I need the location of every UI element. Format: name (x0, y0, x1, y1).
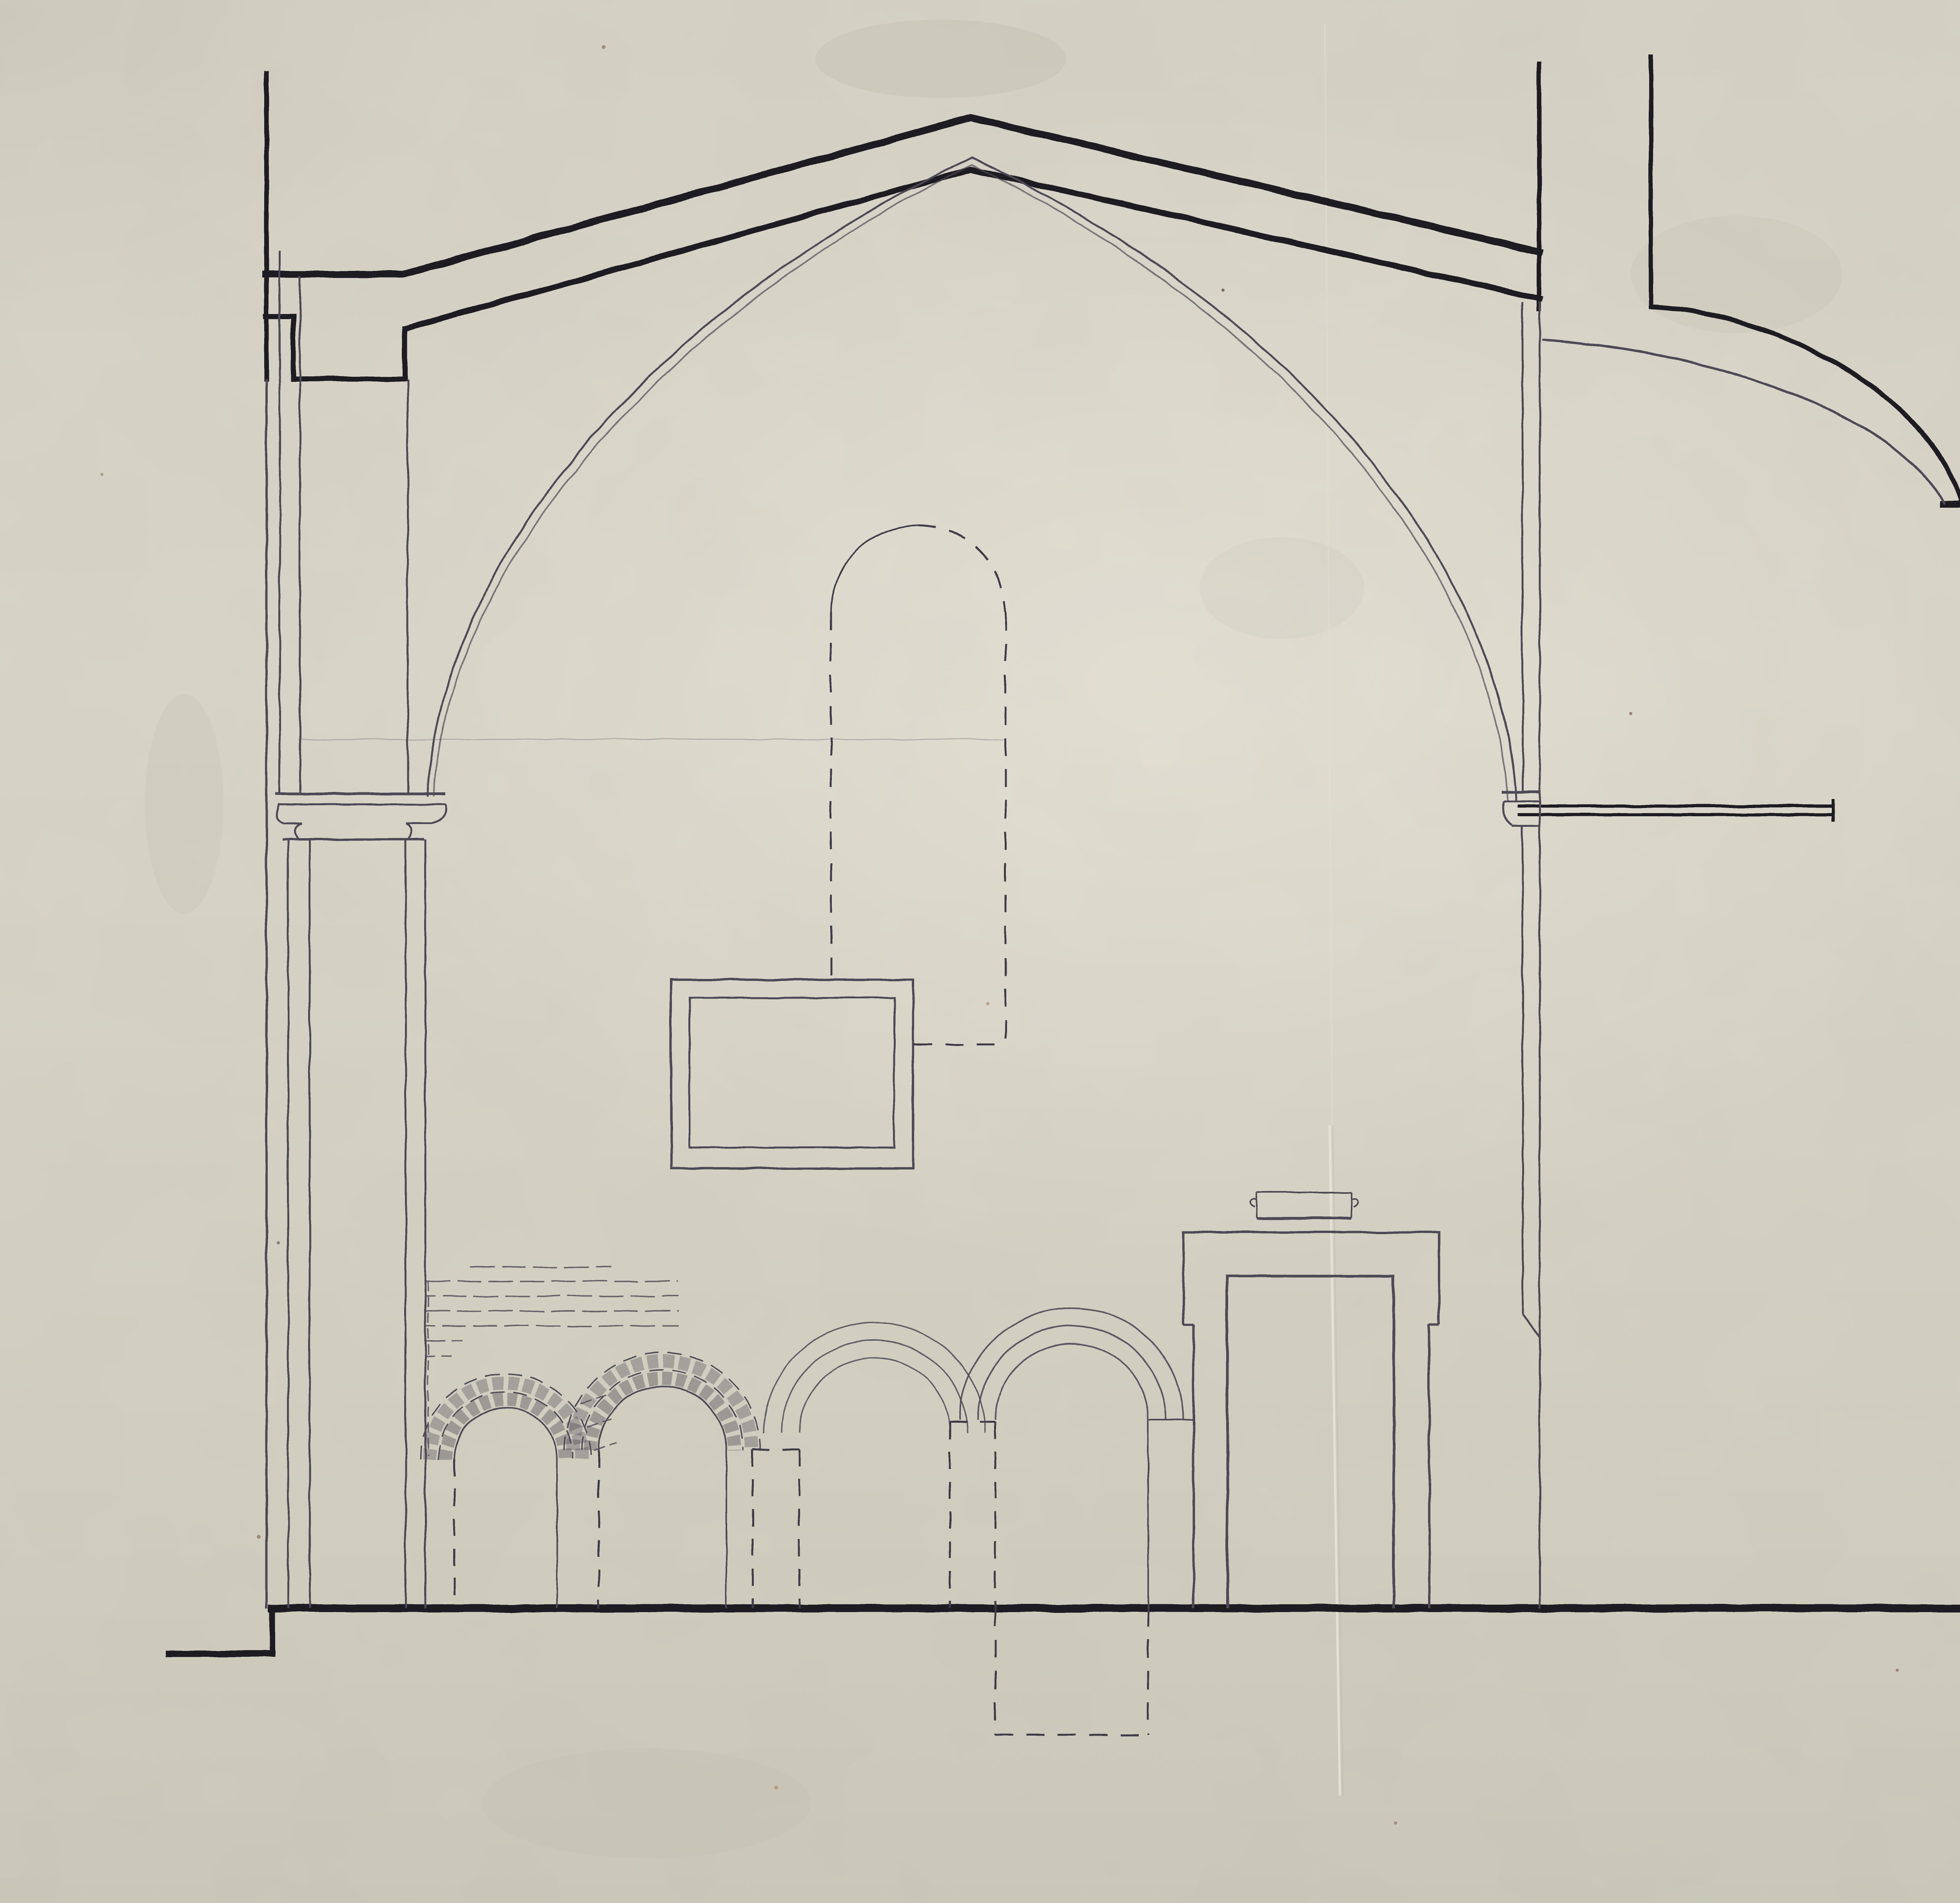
paper-sheet: I. H. A. Sz. i T. F. Wr. szám. 1026/8 ··… (0, 0, 1960, 1903)
section-drawing (0, 0, 1960, 1903)
